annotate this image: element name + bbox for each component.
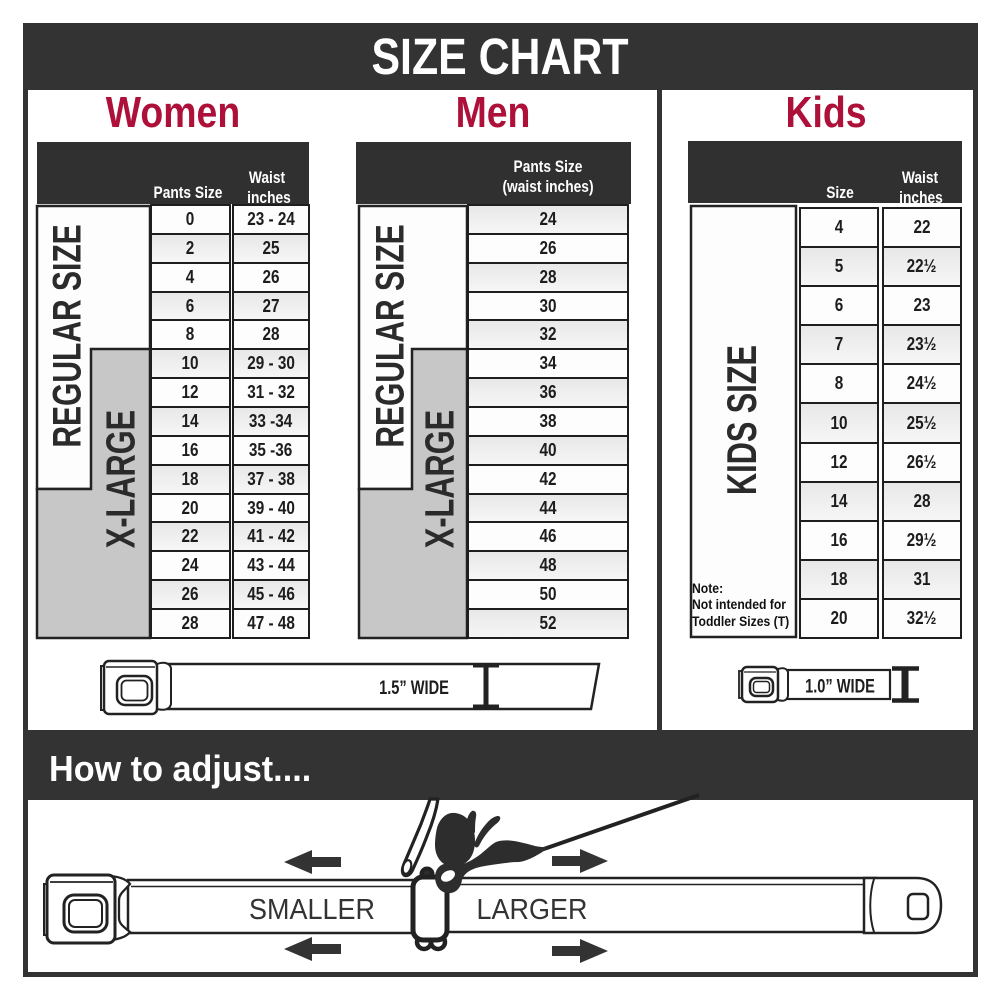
svg-text:1.5” WIDE: 1.5” WIDE [379,677,449,698]
svg-text:1.0” WIDE: 1.0” WIDE [805,676,875,697]
svg-text:LARGER: LARGER [477,893,588,925]
svg-text:SMALLER: SMALLER [249,893,375,925]
